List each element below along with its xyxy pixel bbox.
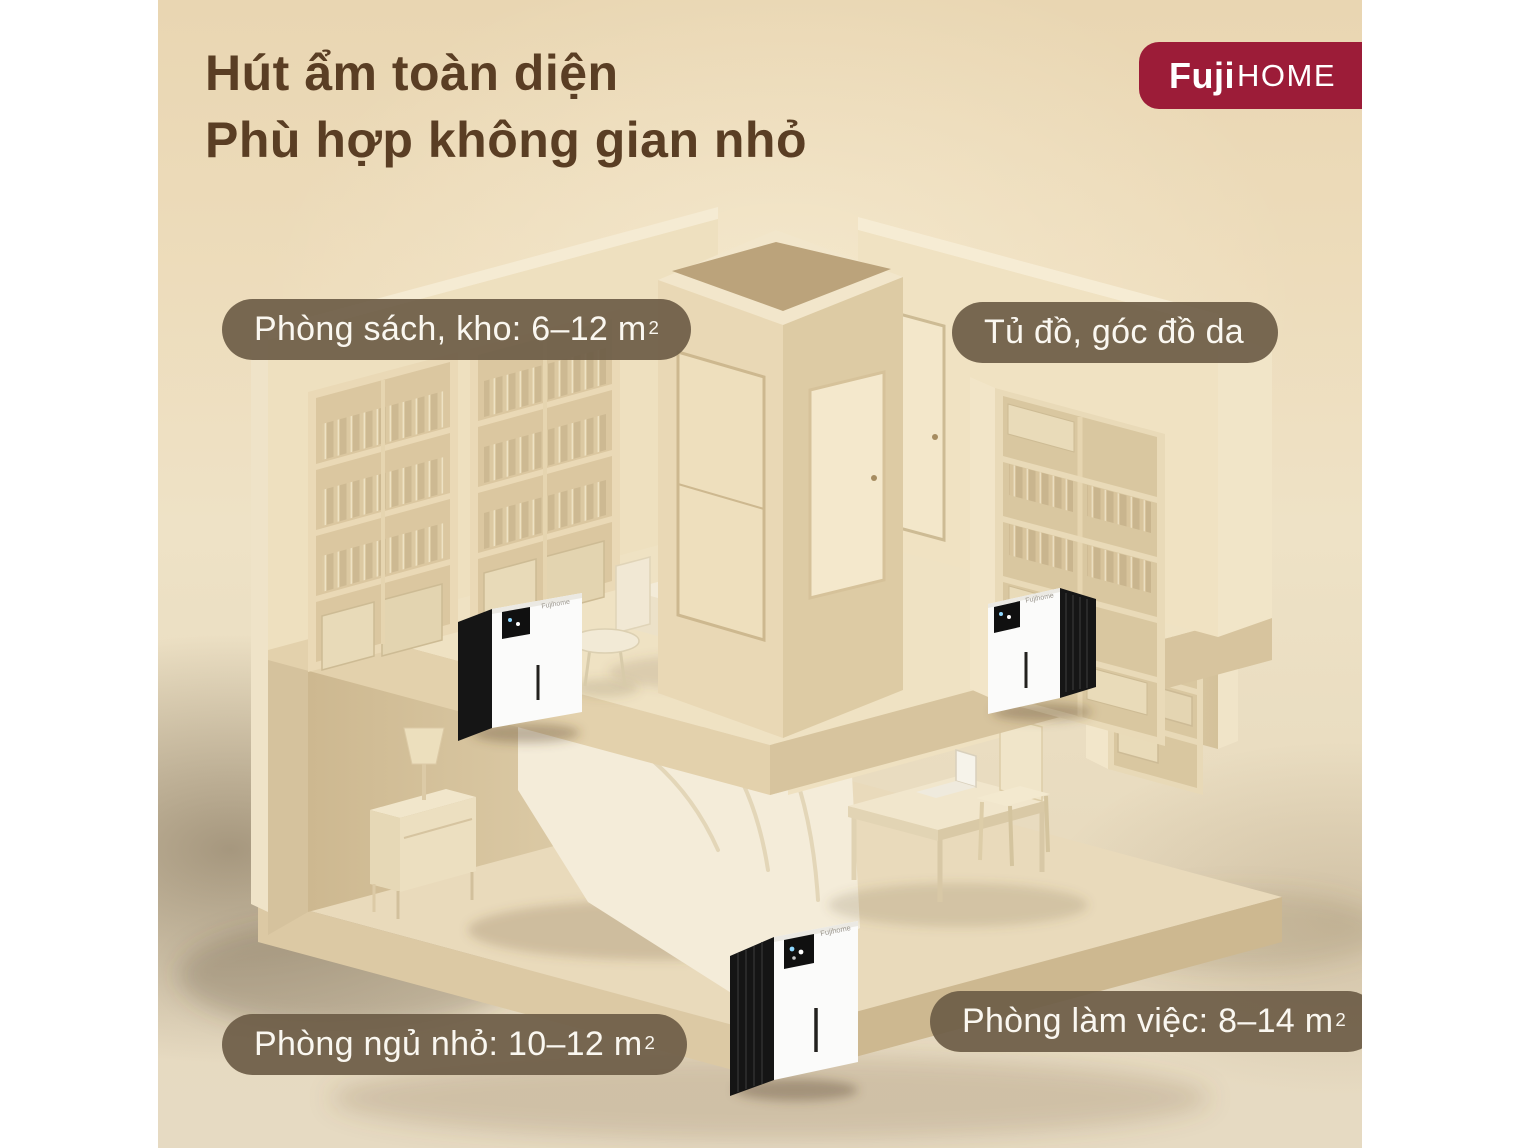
- bookshelf-left: [308, 352, 458, 672]
- room-label-library-sup: 2: [649, 317, 660, 339]
- room-label-library: Phòng sách, kho: 6–12 m2: [222, 299, 691, 360]
- room-label-office-text: Phòng làm việc: 8–14 m: [962, 1002, 1333, 1041]
- brand-logo: Fuji HOME: [1139, 42, 1362, 109]
- brand-logo-text-rest: HOME: [1237, 58, 1336, 94]
- cut-wall-pilaster: [251, 332, 268, 912]
- room-label-wardrobe-text: Tủ đồ, góc đồ da: [984, 313, 1244, 352]
- room-label-bedroom-sup: 2: [644, 1032, 655, 1054]
- stairwell-box: [658, 230, 903, 738]
- advertisement-canvas: Fujihome Fujihome: [0, 0, 1531, 1148]
- room-label-library-text: Phòng sách, kho: 6–12 m: [254, 310, 647, 349]
- room-label-bedroom-text: Phòng ngủ nhỏ: 10–12 m: [254, 1025, 642, 1064]
- room-label-bedroom: Phòng ngủ nhỏ: 10–12 m2: [222, 1014, 687, 1075]
- photo-backdrop: Fujihome Fujihome: [158, 0, 1362, 1148]
- room-label-wardrobe: Tủ đồ, góc đồ da: [952, 302, 1278, 363]
- room-label-office-sup: 2: [1335, 1009, 1346, 1031]
- page-title: Hút ẩm toàn diện Phù hợp không gian nhỏ: [205, 40, 807, 174]
- title-line-1: Hút ẩm toàn diện: [205, 40, 807, 107]
- brand-logo-text-bold: Fuji: [1169, 55, 1235, 97]
- title-line-2: Phù hợp không gian nhỏ: [205, 107, 807, 174]
- room-label-office: Phòng làm việc: 8–14 m2: [930, 991, 1362, 1052]
